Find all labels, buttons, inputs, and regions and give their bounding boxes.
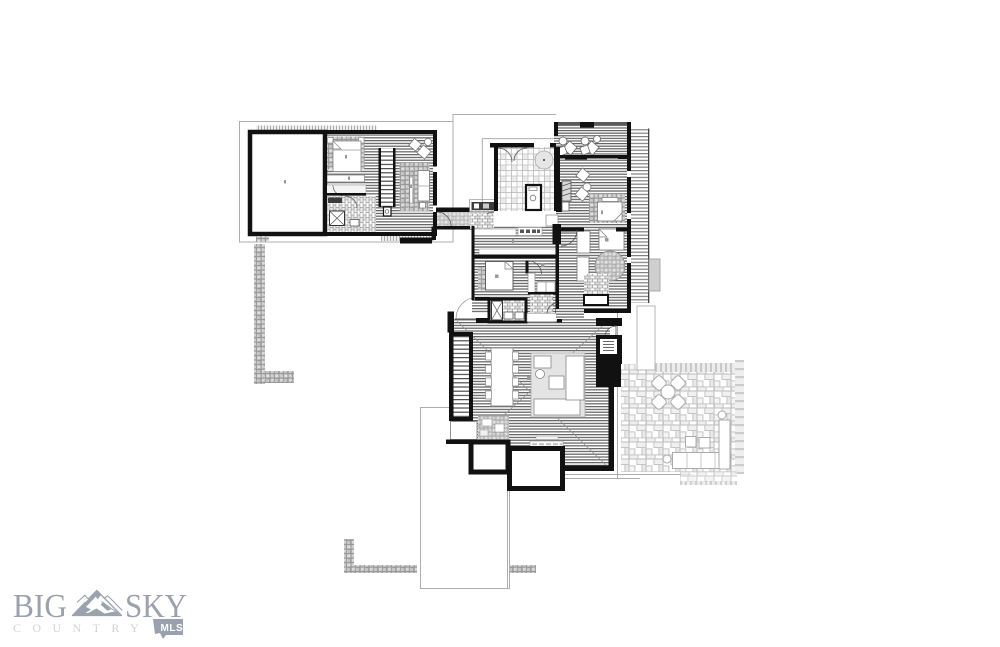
svg-text:MLS: MLS: [161, 623, 184, 634]
svg-text:BIG: BIG: [13, 588, 67, 625]
svg-text:COUNTRY: COUNTRY: [13, 621, 150, 635]
